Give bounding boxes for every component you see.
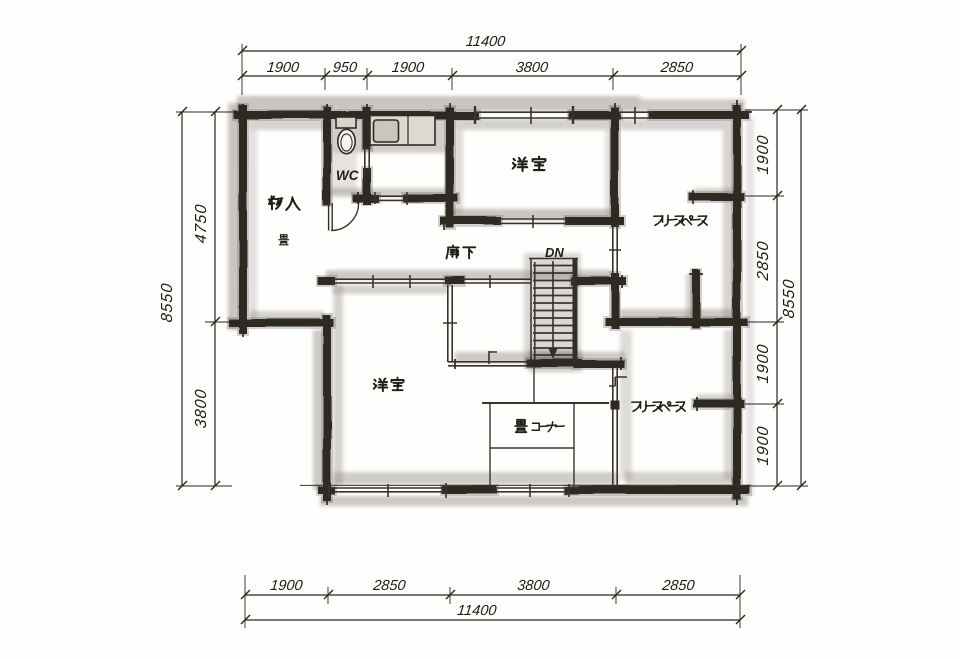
svg-text:1900: 1900: [391, 60, 425, 76]
svg-text:2850: 2850: [659, 60, 694, 76]
svg-text:3800: 3800: [192, 388, 210, 429]
svg-text:4750: 4750: [192, 203, 210, 244]
svg-text:1900: 1900: [269, 578, 303, 594]
svg-text:8550: 8550: [158, 282, 176, 323]
svg-text:11400: 11400: [456, 603, 497, 619]
svg-text:3800: 3800: [516, 578, 550, 594]
svg-text:11400: 11400: [465, 34, 506, 50]
svg-text:1900: 1900: [754, 343, 772, 384]
svg-text:2850: 2850: [371, 578, 406, 594]
svg-text:2850: 2850: [660, 578, 695, 594]
svg-text:1900: 1900: [266, 60, 300, 76]
svg-text:8550: 8550: [780, 278, 798, 319]
svg-text:DN: DN: [545, 245, 564, 260]
svg-text:950: 950: [332, 60, 358, 76]
svg-text:2850: 2850: [754, 240, 772, 282]
svg-text:1900: 1900: [754, 134, 772, 175]
svg-text:WC: WC: [336, 168, 359, 183]
svg-text:1900: 1900: [754, 425, 772, 466]
svg-text:3800: 3800: [515, 60, 549, 76]
